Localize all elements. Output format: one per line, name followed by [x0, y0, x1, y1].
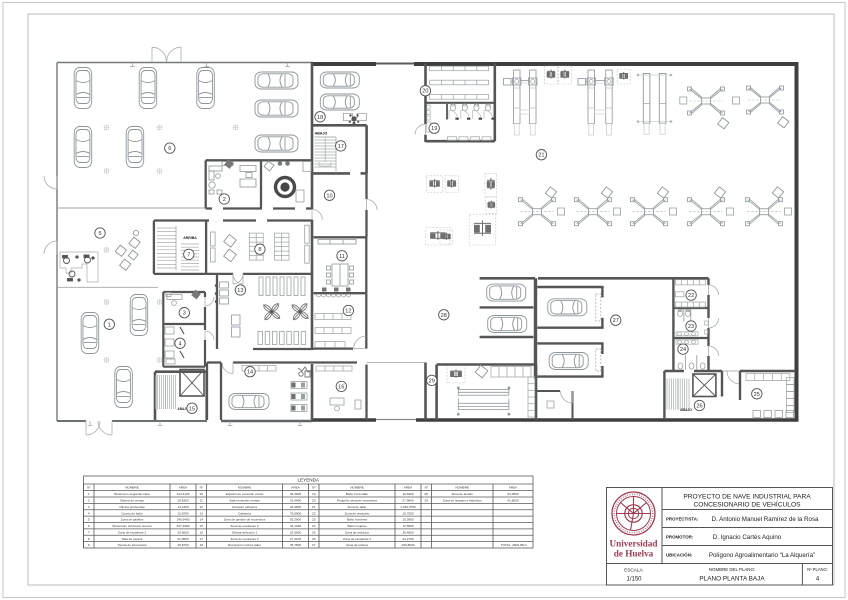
svg-text:Polígono Agroalimentario “La A: Polígono Agroalimentario “La Alquería”	[709, 552, 815, 559]
svg-text:14: 14	[200, 518, 204, 522]
svg-text:55,2900: 55,2900	[290, 518, 301, 522]
svg-text:26: 26	[312, 537, 316, 541]
svg-text:2: 2	[88, 499, 90, 503]
svg-text:Baño zona taller: Baño zona taller	[346, 492, 368, 496]
svg-text:31,4400: 31,4400	[290, 499, 301, 503]
svg-text:Zona de gestión de recambios: Zona de gestión de recambios	[224, 518, 266, 522]
svg-text:29,6500: 29,6500	[177, 530, 188, 534]
svg-text:144,4100: 144,4100	[177, 492, 190, 496]
svg-text:29: 29	[425, 499, 429, 503]
svg-text:27: 27	[613, 318, 619, 324]
svg-text:75,0000: 75,0000	[290, 511, 301, 515]
svg-text:Zona de pasillos: Zona de pasillos	[121, 518, 144, 522]
svg-text:Oficina postventas: Oficina postventas	[119, 505, 145, 509]
svg-text:30,4000: 30,4000	[402, 530, 413, 534]
svg-text:Cafetería: Cafetería	[238, 511, 251, 515]
svg-text:3: 3	[88, 505, 90, 509]
svg-text:10,7500: 10,7500	[402, 511, 413, 515]
svg-text:4: 4	[178, 341, 181, 347]
svg-text:Tienda de accesorios: Tienda de accesorios	[117, 543, 147, 547]
svg-text:PROYECTISTA:: PROYECTISTA:	[666, 517, 699, 522]
svg-text:21: 21	[312, 505, 316, 509]
svg-text:14: 14	[247, 370, 253, 376]
svg-text:16: 16	[200, 530, 204, 534]
svg-text:25: 25	[754, 392, 760, 398]
svg-text:61,0500: 61,0500	[177, 537, 188, 541]
svg-text:Zona de taller: Zona de taller	[348, 505, 367, 509]
svg-text:11: 11	[339, 254, 345, 260]
svg-text:Showroom vehículos nuevos: Showroom vehículos nuevos	[112, 524, 152, 528]
svg-text:PROMOTOR:: PROMOTOR:	[666, 535, 694, 540]
svg-text:247,1900: 247,1900	[177, 524, 190, 528]
svg-text:12: 12	[200, 505, 204, 509]
svg-text:ARRIBA: ARRIBA	[183, 236, 197, 240]
svg-text:28: 28	[425, 492, 429, 496]
svg-text:Baño mujeres: Baño mujeres	[347, 524, 367, 528]
svg-text:NOMBRE: NOMBRE	[238, 486, 252, 490]
svg-text:NOMBRE: NOMBRE	[125, 486, 139, 490]
svg-text:1/150: 1/150	[626, 577, 642, 583]
svg-text:15: 15	[189, 406, 195, 412]
svg-text:8: 8	[258, 247, 261, 253]
svg-text:36,4900: 36,4900	[290, 492, 301, 496]
svg-text:Zona de escaleras 4: Zona de escaleras 4	[343, 537, 371, 541]
svg-text:41,8000: 41,8000	[507, 499, 518, 503]
svg-text:27: 27	[312, 543, 316, 547]
svg-text:24: 24	[312, 524, 316, 528]
svg-text:Sala reuniones ventas: Sala reuniones ventas	[229, 499, 260, 503]
svg-text:8: 8	[88, 537, 90, 541]
svg-text:145,6400: 145,6400	[177, 518, 190, 522]
svg-text:D. Ignacio Cartés Aquino: D. Ignacio Cartés Aquino	[713, 534, 782, 541]
svg-text:32,3000: 32,3000	[290, 530, 301, 534]
svg-text:Nº PLANO:: Nº PLANO:	[807, 567, 828, 572]
svg-text:9: 9	[88, 543, 90, 547]
svg-text:Zona de pintura: Zona de pintura	[346, 543, 368, 547]
svg-text:Recepción coches taller: Recepción coches taller	[228, 543, 261, 547]
svg-text:32,3000: 32,3000	[290, 505, 301, 509]
svg-text:22: 22	[688, 293, 694, 299]
svg-text:Cuarto de baño: Cuarto de baño	[121, 511, 143, 515]
svg-text:19: 19	[312, 492, 316, 496]
svg-text:21: 21	[538, 153, 544, 159]
svg-text:3: 3	[183, 311, 186, 317]
svg-text:19: 19	[431, 126, 437, 132]
svg-text:13,1300: 13,1300	[177, 505, 188, 509]
svg-text:UBICACIÓN:: UBICACIÓN:	[666, 553, 693, 558]
svg-text:ESCALA:: ESCALA:	[624, 568, 643, 573]
svg-text:28: 28	[441, 313, 447, 319]
svg-text:CONCESIONARIO DE VEHÍCULOS: CONCESIONARIO DE VEHÍCULOS	[694, 500, 802, 509]
svg-text:27,9800: 27,9800	[402, 499, 413, 503]
svg-text:25,8700: 25,8700	[177, 543, 188, 547]
svg-text:4: 4	[88, 511, 90, 515]
svg-text:Zona de lavado: Zona de lavado	[452, 492, 474, 496]
svg-text:Zona de escaleras 2: Zona de escaleras 2	[230, 524, 258, 528]
svg-text:20: 20	[312, 499, 316, 503]
svg-text:2: 2	[223, 197, 226, 203]
svg-text:Sala de espera: Sala de espera	[122, 537, 143, 541]
svg-text:Baño hombres: Baño hombres	[347, 518, 368, 522]
svg-text:5: 5	[98, 231, 101, 237]
svg-text:24,2700: 24,2700	[402, 537, 413, 541]
svg-text:18: 18	[200, 543, 204, 547]
svg-text:27,3100: 27,3100	[290, 537, 301, 541]
svg-text:20: 20	[422, 89, 428, 95]
svg-text:Zona de escaleras 3: Zona de escaleras 3	[230, 537, 258, 541]
svg-text:32,1300: 32,1300	[290, 524, 301, 528]
svg-text:de Huelva: de Huelva	[614, 549, 654, 559]
svg-text:10: 10	[200, 492, 204, 496]
svg-text:12,8700: 12,8700	[177, 511, 188, 515]
svg-text:AREA: AREA	[509, 486, 518, 490]
svg-text:26,6300: 26,6300	[177, 499, 188, 503]
svg-text:6: 6	[168, 146, 171, 152]
svg-text:Pequeño almacén recambios: Pequeño almacén recambios	[337, 499, 378, 503]
svg-text:Espacio de conexión zonas: Espacio de conexión zonas	[226, 492, 264, 496]
svg-text:7: 7	[88, 530, 90, 534]
svg-text:12,5500: 12,5500	[402, 524, 413, 528]
svg-text:23: 23	[312, 518, 316, 522]
svg-text:26: 26	[696, 404, 702, 410]
svg-text:5: 5	[88, 518, 90, 522]
svg-text:Showroom segunda mano: Showroom segunda mano	[114, 492, 150, 496]
svg-text:29: 29	[429, 378, 435, 384]
svg-text:AREA: AREA	[291, 486, 300, 490]
svg-text:6: 6	[88, 524, 90, 528]
svg-text:13: 13	[237, 288, 243, 294]
svg-text:35,7500: 35,7500	[290, 543, 301, 547]
svg-text:1 189,9700: 1 189,9700	[400, 505, 416, 509]
svg-text:15: 15	[200, 524, 204, 528]
svg-text:17: 17	[338, 144, 344, 150]
svg-text:23: 23	[688, 324, 694, 330]
svg-text:D. Antonio Manuel Ramírez de l: D. Antonio Manuel Ramírez de la Rosa	[712, 516, 820, 523]
svg-text:TOTAL: 2804,95m²: TOTAL: 2804,95m²	[501, 543, 527, 547]
svg-text:Oficina de ventas: Oficina de ventas	[120, 499, 144, 503]
svg-text:19,5300: 19,5300	[402, 492, 413, 496]
svg-text:25: 25	[312, 530, 316, 534]
svg-text:PROYECTO DE NAVE INDUSTRIAL PA: PROYECTO DE NAVE INDUSTRIAL PARA	[683, 494, 811, 501]
svg-text:10,3900: 10,3900	[402, 518, 413, 522]
svg-text:11: 11	[200, 499, 203, 503]
svg-text:LEYENDA: LEYENDA	[298, 478, 320, 483]
svg-text:ABAJO: ABAJO	[315, 131, 328, 135]
svg-text:17: 17	[200, 537, 204, 541]
svg-text:PLANO PLANTA BAJA: PLANO PLANTA BAJA	[699, 576, 765, 583]
svg-text:Zona de vestuario: Zona de vestuario	[345, 511, 370, 515]
svg-text:NOMBRE: NOMBRE	[455, 486, 469, 490]
svg-text:199,8600: 199,8600	[402, 543, 415, 547]
svg-text:NOMBRE: NOMBRE	[350, 486, 364, 490]
svg-text:13: 13	[200, 511, 204, 515]
svg-text:18: 18	[317, 115, 323, 121]
svg-text:Zona de residuos: Zona de residuos	[345, 530, 369, 534]
svg-text:1: 1	[108, 322, 111, 328]
svg-text:Universidad: Universidad	[610, 539, 658, 549]
svg-text:10: 10	[326, 193, 332, 199]
svg-text:ABAJO: ABAJO	[680, 408, 692, 412]
svg-text:AREA: AREA	[179, 486, 188, 490]
svg-text:Almacén cafetería: Almacén cafetería	[232, 505, 257, 509]
svg-text:16: 16	[338, 384, 344, 390]
svg-text:22: 22	[312, 511, 316, 515]
svg-text:Zona de escaleras 1: Zona de escaleras 1	[118, 530, 146, 534]
svg-text:1: 1	[88, 492, 90, 496]
svg-text:24: 24	[680, 347, 686, 353]
svg-text:Zona en lavados e hidróleos: Zona en lavados e hidróleos	[443, 499, 482, 503]
svg-text:AREA: AREA	[404, 486, 413, 490]
svg-text:64,0500: 64,0500	[507, 492, 518, 496]
svg-text:Oficina dirección 1: Oficina dirección 1	[232, 530, 258, 534]
svg-text:7: 7	[187, 252, 190, 258]
svg-text:NOMBRE DEL PLANO:: NOMBRE DEL PLANO:	[709, 567, 755, 572]
svg-text:12: 12	[345, 309, 351, 315]
